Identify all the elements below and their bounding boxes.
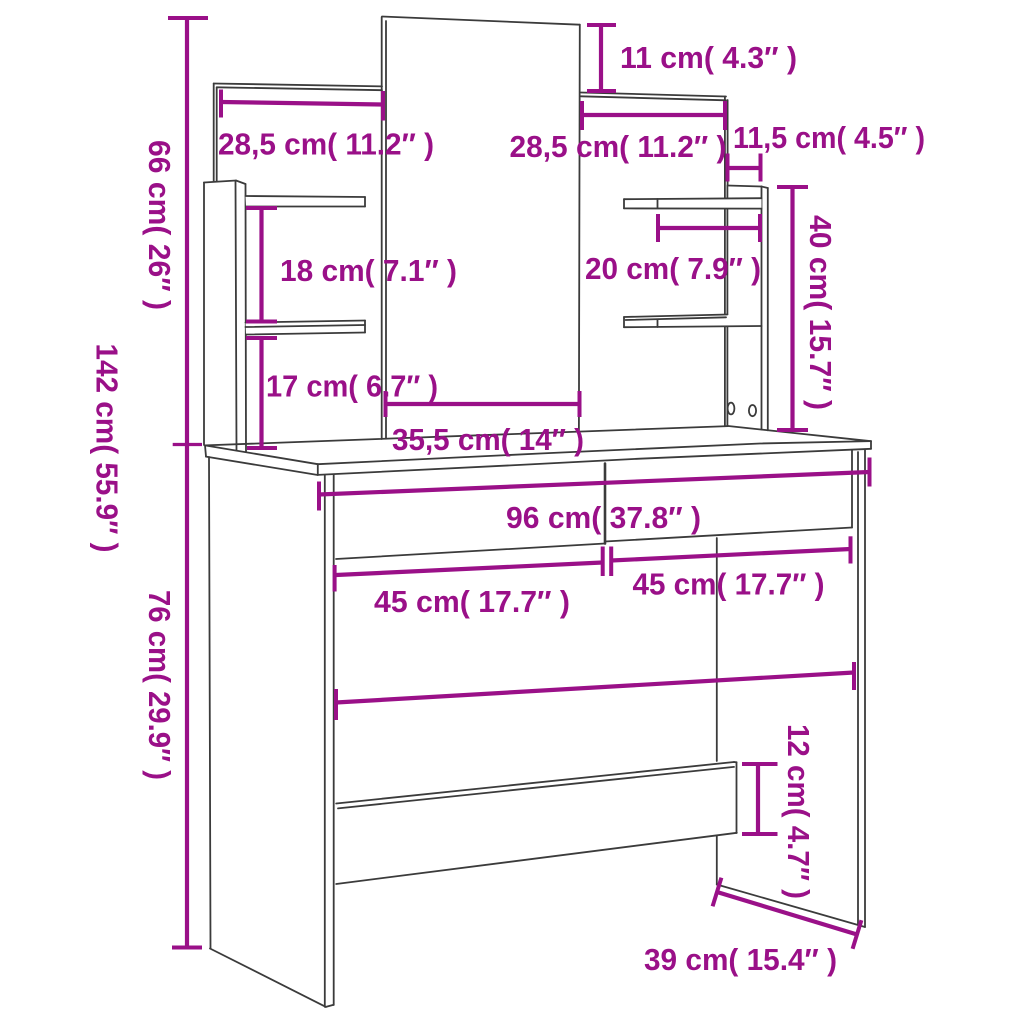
svg-text:12 cm( 4.7″ ): 12 cm( 4.7″ ) — [781, 724, 816, 899]
svg-text:66 cm( 26″ ): 66 cm( 26″ ) — [142, 140, 177, 310]
svg-text:17 cm( 6.7″ ): 17 cm( 6.7″ ) — [266, 369, 438, 404]
svg-text:28,5 cm( 11.2″ ): 28,5 cm( 11.2″ ) — [218, 127, 434, 162]
svg-text:45 cm( 17.7″ ): 45 cm( 17.7″ ) — [633, 567, 825, 602]
svg-text:18 cm( 7.1″ ): 18 cm( 7.1″ ) — [280, 253, 457, 288]
svg-text:39 cm( 15.4″ ): 39 cm( 15.4″ ) — [644, 942, 837, 977]
svg-text:45 cm( 17.7″ ): 45 cm( 17.7″ ) — [374, 584, 570, 619]
svg-text:142 cm( 55.9″ ): 142 cm( 55.9″ ) — [90, 344, 125, 553]
svg-text:11 cm( 4.3″ ): 11 cm( 4.3″ ) — [620, 40, 797, 75]
svg-text:11,5 cm( 4.5″ ): 11,5 cm( 4.5″ ) — [733, 120, 925, 155]
svg-text:40 cm( 15.7″ ): 40 cm( 15.7″ ) — [803, 215, 838, 410]
svg-text:35,5 cm( 14″ ): 35,5 cm( 14″ ) — [392, 422, 584, 457]
svg-text:28,5 cm( 11.2″ ): 28,5 cm( 11.2″ ) — [510, 129, 727, 164]
svg-text:96 cm( 37.8″ ): 96 cm( 37.8″ ) — [506, 500, 701, 535]
svg-text:20 cm( 7.9″ ): 20 cm( 7.9″ ) — [585, 251, 761, 286]
svg-text:76 cm( 29.9″ ): 76 cm( 29.9″ ) — [142, 590, 177, 780]
